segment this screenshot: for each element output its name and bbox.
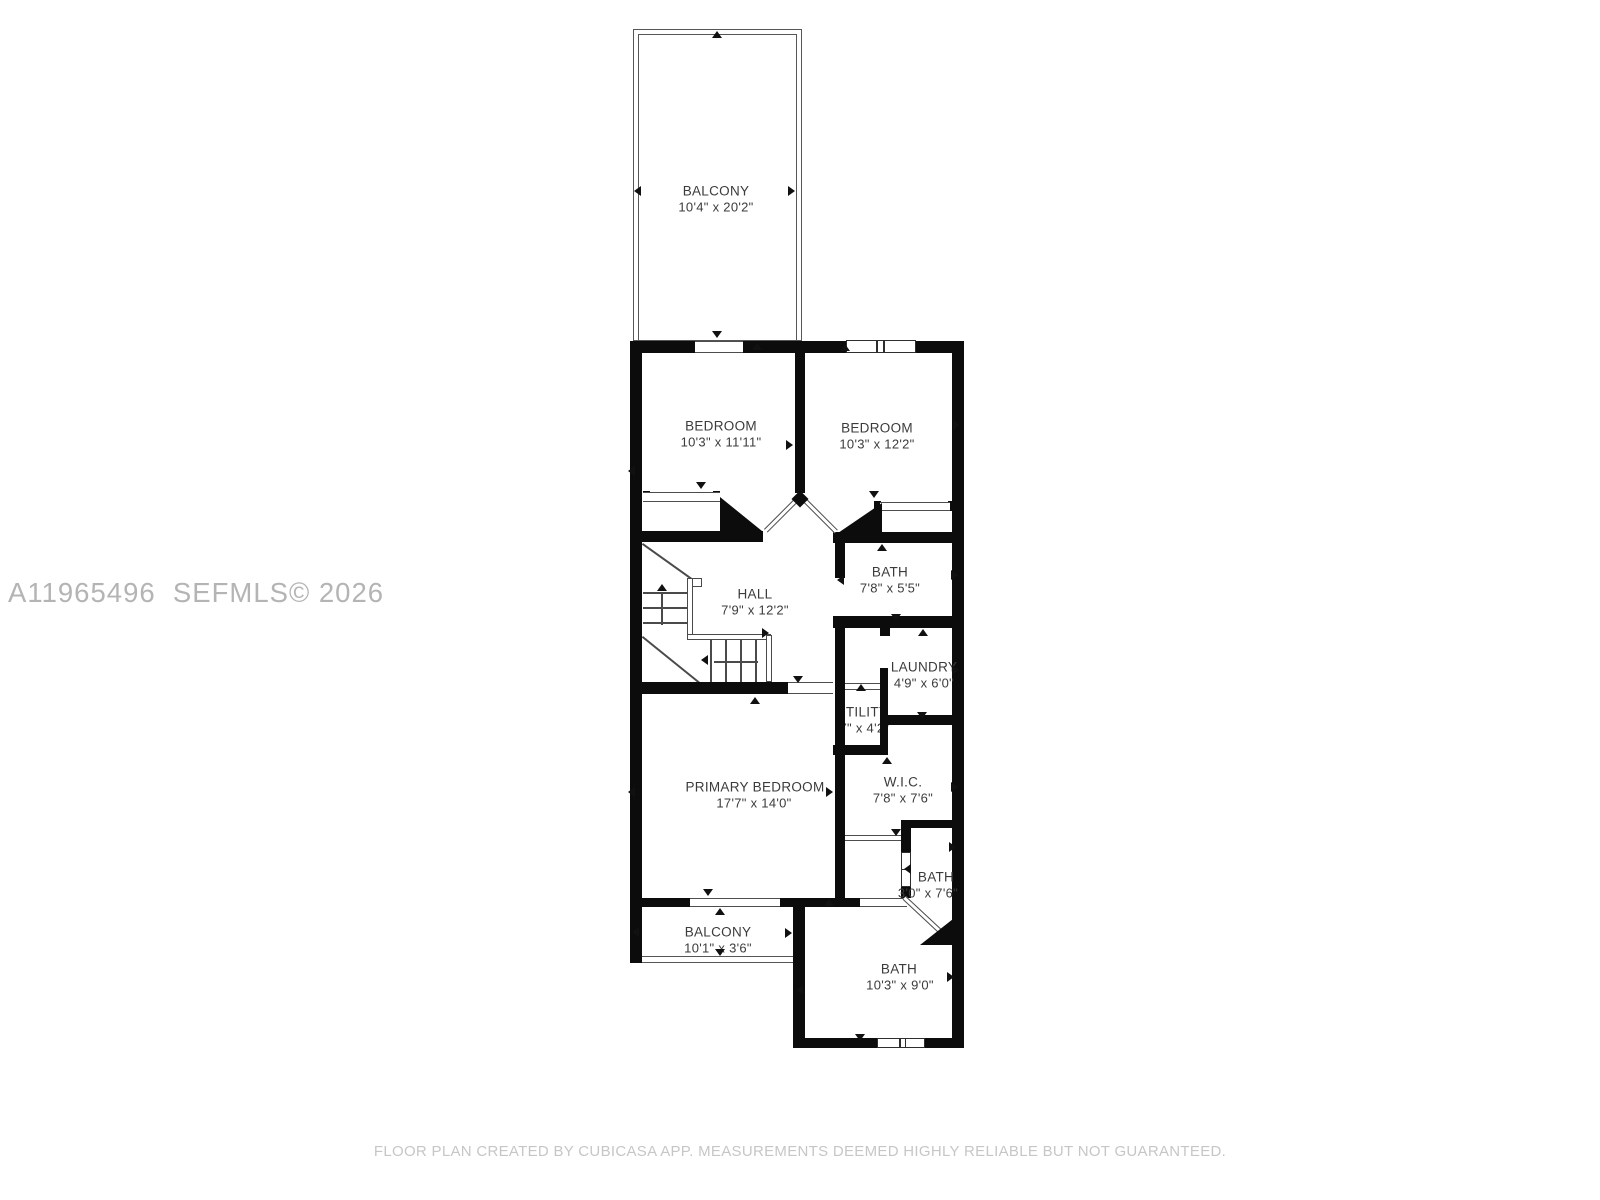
wall: [835, 543, 845, 578]
room-dims-bath-upper: 7'8" x 5'5": [860, 581, 920, 596]
stair-rail: [687, 634, 771, 640]
wall: [880, 627, 890, 636]
room-dims-laundry: 4'9" x 6'0": [894, 676, 954, 691]
wall: [630, 898, 690, 907]
door-swing: [920, 919, 953, 945]
room-dims-bedroom-right: 10'3" x 12'2": [839, 437, 914, 452]
door-opening: [690, 898, 780, 907]
wall: [901, 820, 964, 828]
dimension-arrow-down: [869, 491, 879, 498]
dimension-arrow-up: [877, 544, 887, 551]
room-dims-wic: 7'8" x 7'6": [873, 791, 933, 806]
window-divider: [905, 1039, 907, 1047]
door-opening: [695, 341, 743, 353]
wall: [833, 532, 964, 543]
room-label-laundry: LAUNDRY: [891, 660, 957, 675]
stair-line: [643, 622, 687, 624]
dimension-arrow-right: [786, 440, 793, 450]
door-opening: [788, 682, 833, 694]
wall: [630, 682, 788, 694]
wall: [835, 682, 845, 898]
door-opening: [643, 492, 720, 502]
room-label-balcony-bottom: BALCONY: [685, 925, 752, 940]
dimension-arrow-up: [918, 629, 928, 636]
door-swing: [720, 497, 762, 531]
stair-line: [711, 640, 713, 682]
room-label-primary-bedroom: PRIMARY BEDROOM: [685, 780, 824, 795]
room-dims-balcony-bottom: 10'1" x 3'6": [684, 941, 752, 956]
door-swing: [838, 503, 882, 533]
room-label-bath-big: BATH: [881, 962, 917, 977]
wall: [630, 341, 642, 963]
dimension-arrow-up: [750, 697, 760, 704]
room-label-bath-upper: BATH: [872, 565, 908, 580]
room-dims-hall: 7'9" x 12'2": [721, 603, 789, 618]
window: [846, 340, 916, 353]
window-divider: [899, 1039, 901, 1047]
dimension-arrow-down: [696, 482, 706, 489]
stair-line: [642, 636, 700, 683]
stair-rail: [766, 635, 772, 682]
stair-rail: [692, 578, 702, 587]
balcony-railing: [630, 956, 793, 963]
dimension-arrow-right: [826, 787, 833, 797]
wall: [952, 341, 964, 1048]
wall: [795, 353, 805, 493]
stair-line: [642, 543, 692, 579]
window-divider: [883, 341, 885, 352]
mls-watermark: A11965496 SEFMLS© 2026: [8, 577, 384, 609]
disclaimer-footer: FLOOR PLAN CREATED BY CUBICASA APP. MEAS…: [0, 1143, 1600, 1160]
room-label-wic: W.I.C.: [884, 775, 923, 790]
door-opening: [880, 502, 950, 511]
angled-doorway: [802, 498, 837, 533]
stair-line: [662, 592, 664, 625]
room-label-bedroom-right: BEDROOM: [841, 421, 913, 436]
stair-line: [643, 592, 687, 594]
wall: [833, 616, 964, 628]
room-dims-bedroom-left: 10'3" x 11'11": [681, 435, 762, 450]
dimension-arrow-right: [785, 928, 792, 938]
room-label-balcony-top: BALCONY: [683, 184, 750, 199]
room-label-hall: HALL: [738, 587, 773, 602]
wall: [901, 828, 911, 852]
stair-line: [714, 661, 758, 663]
window-divider: [876, 341, 878, 352]
room-label-bedroom-left: BEDROOM: [685, 419, 757, 434]
room-dims-balcony-top: 10'4" x 20'2": [678, 200, 753, 215]
dimension-arrow-up: [657, 584, 667, 591]
wall: [833, 745, 888, 755]
dimension-arrow-up: [882, 757, 892, 764]
room-dims-primary-bedroom: 17'7" x 14'0": [716, 796, 791, 811]
stair-line: [643, 607, 687, 609]
dimension-arrow-up: [715, 908, 725, 915]
wall: [835, 628, 845, 682]
room-dims-bath-big: 10'3" x 9'0": [866, 978, 934, 993]
stair-rail: [687, 578, 693, 640]
dimension-arrow-left: [701, 655, 708, 665]
wall: [630, 531, 763, 542]
floorplan-page: A11965496 SEFMLS© 2026 BALCONY10'4" x 20…: [0, 0, 1600, 1200]
room-dims-bath-small: 3'0" x 7'6": [898, 886, 958, 901]
wall: [793, 898, 805, 1048]
room-label-bath-small: BATH: [918, 870, 954, 885]
dimension-arrow-down: [703, 889, 713, 896]
door-opening: [845, 835, 901, 841]
wall: [880, 668, 888, 755]
window: [877, 1038, 925, 1048]
